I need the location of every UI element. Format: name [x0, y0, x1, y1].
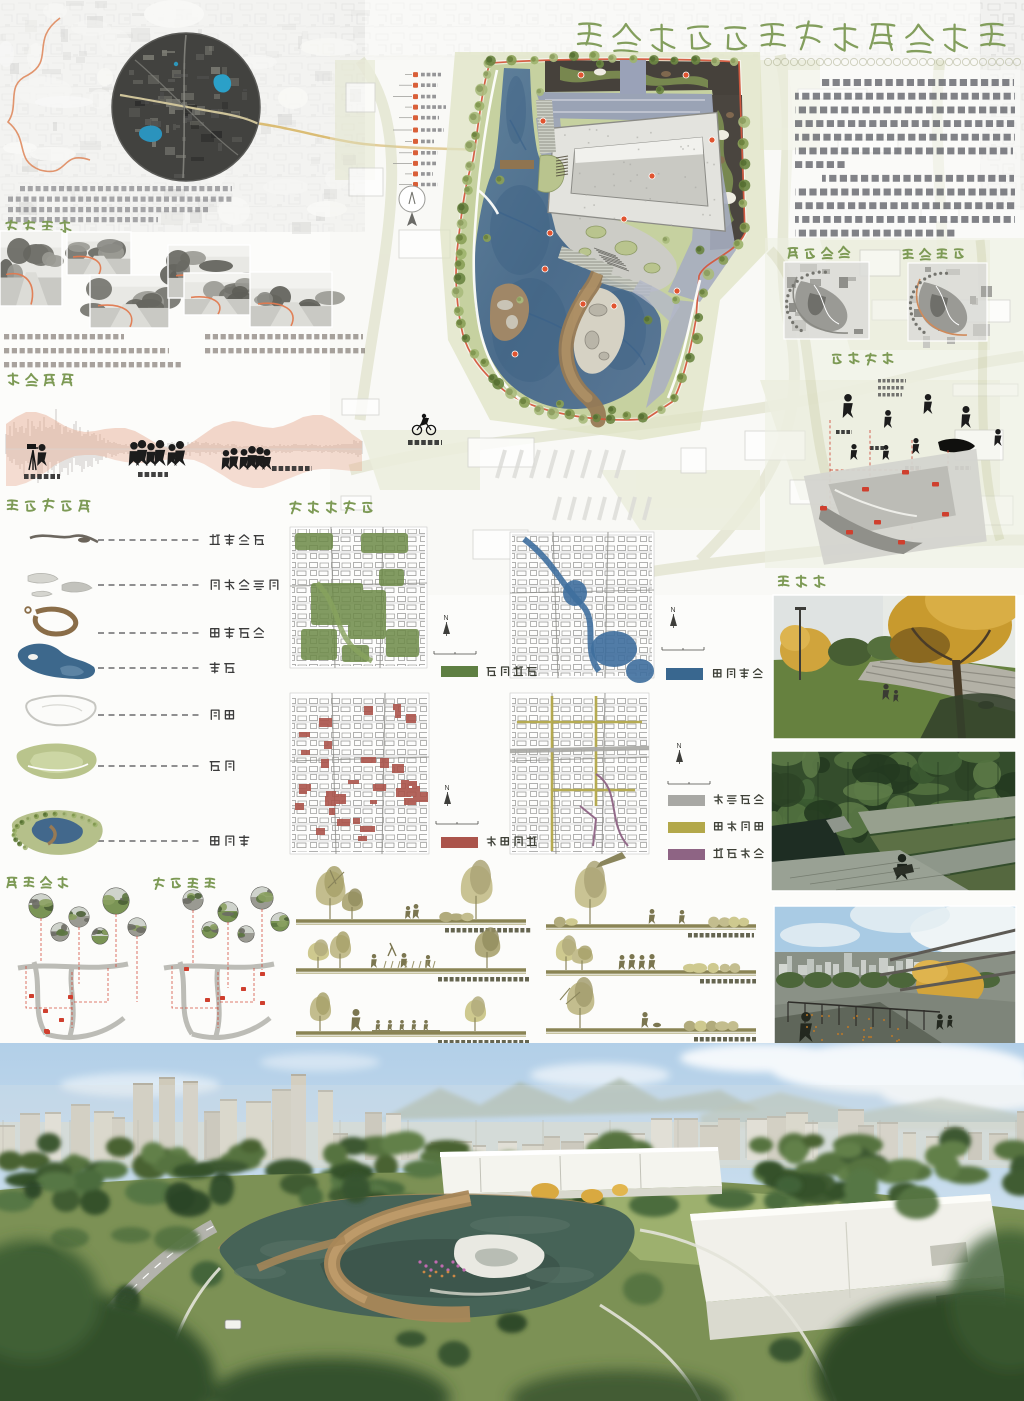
svg-text:N: N — [677, 743, 682, 750]
svg-text:N: N — [445, 785, 450, 792]
svg-text:N: N — [444, 615, 449, 622]
svg-text:N: N — [671, 607, 676, 614]
